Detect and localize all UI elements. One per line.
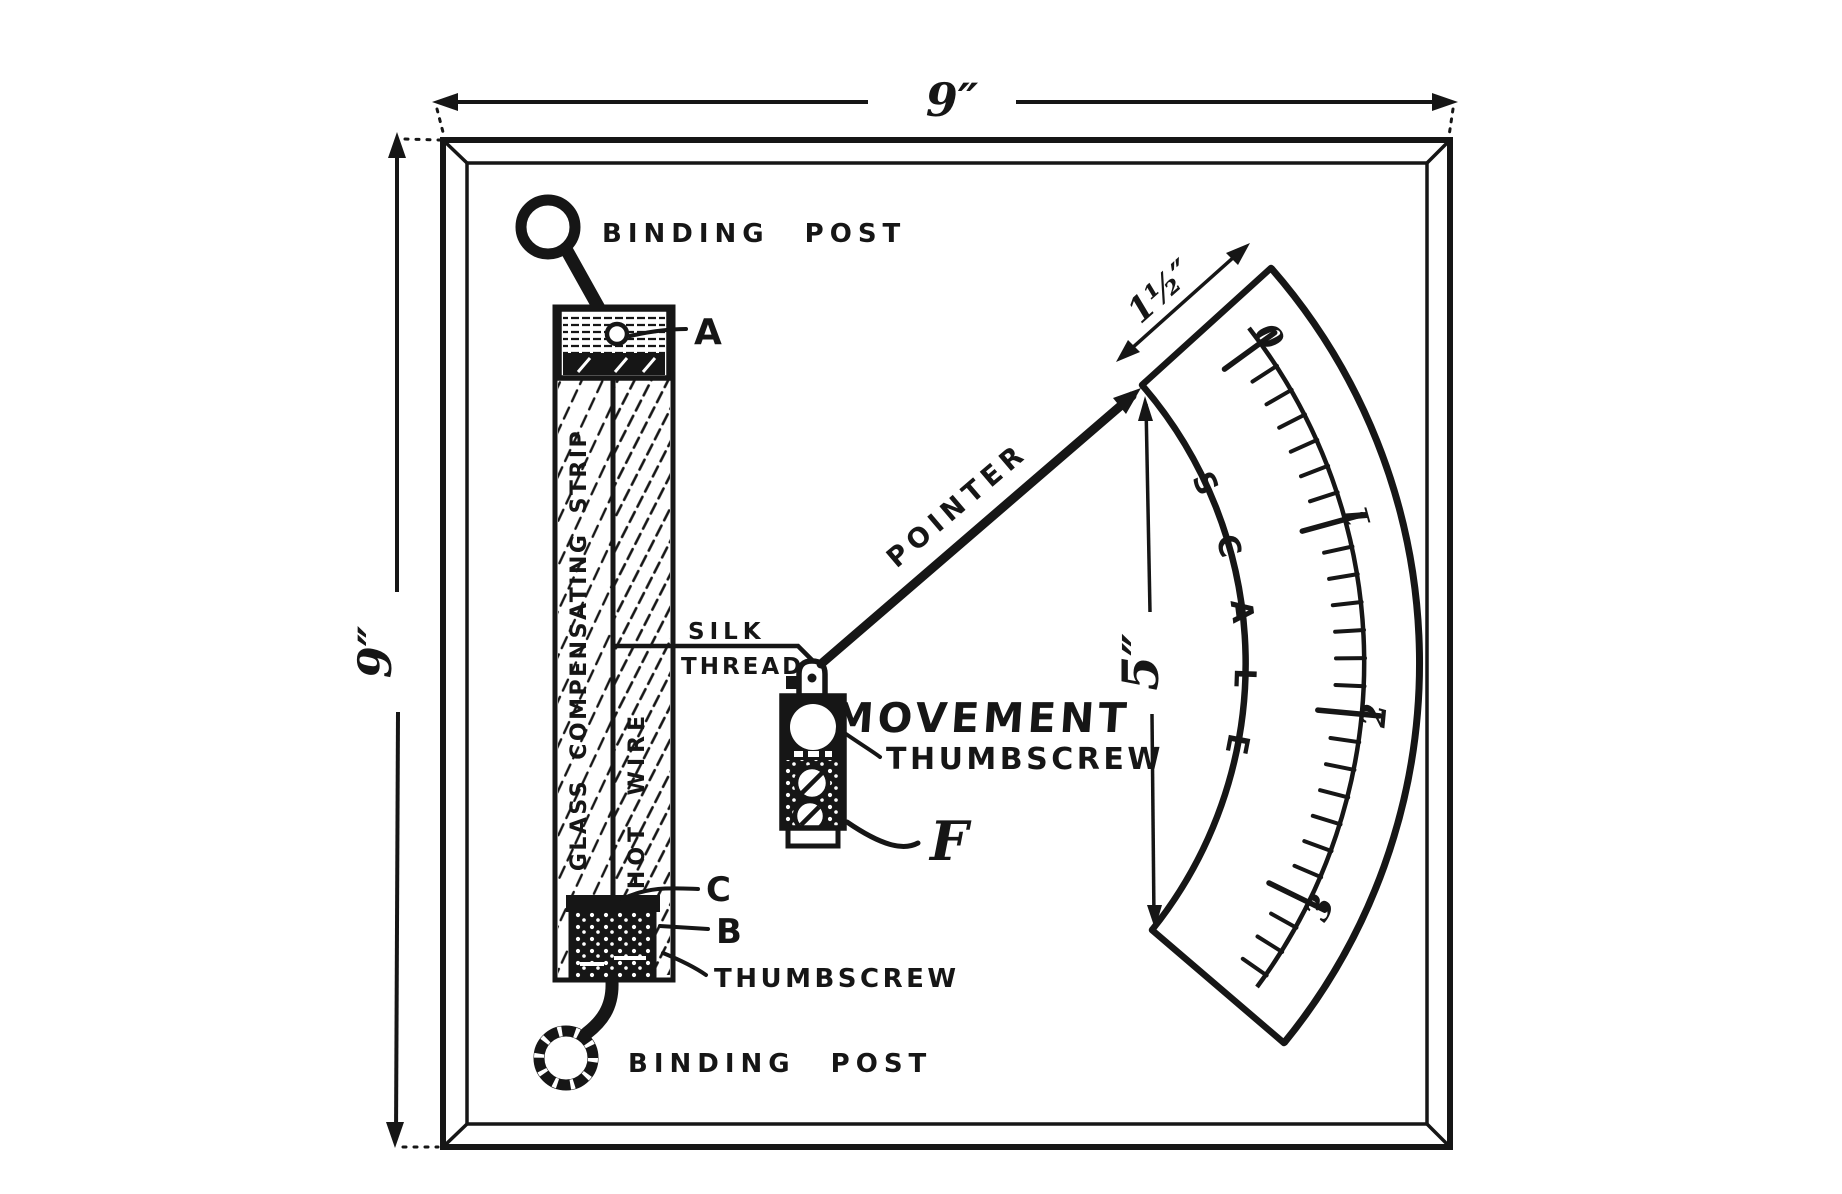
- thread-label: THREAD: [681, 654, 804, 680]
- scale-minor-tick: [1324, 547, 1352, 553]
- top-clamp-screw-icon: [607, 324, 627, 344]
- pointer-needle: [821, 396, 1132, 664]
- movement-thumbscrew-label: THUMBSCREW: [886, 742, 1164, 777]
- height-dim-arrow-top: [388, 132, 406, 158]
- scale-number-2: 2: [1353, 702, 1395, 730]
- scale-width-dim-label: 1½″: [1120, 252, 1202, 331]
- movement-thumbscrew-head-icon: [790, 704, 836, 750]
- scale-minor-tick: [1291, 440, 1317, 452]
- scale-word-letter: S: [1184, 466, 1225, 500]
- bottom-clamp-block: [566, 895, 660, 980]
- compensating-strip: GLASS COMPENSATING STRIP HOT WIRE: [555, 307, 673, 980]
- top-clamp-block: [559, 309, 669, 378]
- point-b-label: B: [716, 912, 742, 952]
- bottom-clamp-body: [571, 903, 654, 980]
- movement-label: MOVEMENT: [831, 694, 1132, 742]
- movement-detail-2: [808, 751, 819, 757]
- movement-detail-3: [825, 751, 832, 757]
- height-dim-line-bottom: [396, 712, 398, 1138]
- scale-minor-tick: [1333, 602, 1362, 605]
- scale-chord-dim-line-bottom: [1152, 714, 1154, 920]
- width-dimension: 9″: [432, 73, 1458, 136]
- board-bevel-bottom-left: [443, 1124, 467, 1147]
- width-dim-extension-left: [437, 109, 444, 136]
- glass-strip-label: GLASS COMPENSATING STRIP: [567, 429, 592, 871]
- scale-bottom-edge: [1152, 930, 1284, 1043]
- scale-minor-tick: [1243, 959, 1267, 976]
- bottom-binding-post-label: BINDING POST: [628, 1049, 932, 1079]
- scale-chord-dimension: 5″: [1111, 396, 1170, 929]
- hot-wire-label: HOT WIRE: [625, 711, 650, 889]
- scale-minor-tick: [1301, 466, 1328, 477]
- scale-word-letter: E: [1218, 731, 1256, 758]
- pivot-tab: [786, 676, 797, 689]
- scale-minor-tick: [1271, 914, 1296, 928]
- width-dim-label: 9″: [926, 73, 979, 127]
- height-dim-arrow-bottom: [386, 1122, 404, 1148]
- figure-page: 9″ 9″ BINDING POST GLASS COMPENS: [0, 0, 1842, 1194]
- movement-assembly: MOVEMENT THUMBSCREW F: [782, 661, 1164, 873]
- board-bevel-top-left: [443, 140, 467, 163]
- height-dimension: 9″: [348, 132, 440, 1148]
- height-dim-extension-top: [405, 139, 440, 140]
- scale-minor-tick: [1320, 790, 1348, 797]
- scale-assembly: 0123 SCALE 1½″ 5″: [1111, 243, 1420, 1043]
- board-bevel-bottom-right: [1427, 1124, 1450, 1147]
- silk-label: SILK: [688, 619, 766, 645]
- scale-word-letter: L: [1226, 668, 1262, 688]
- scale-word-letter: C: [1208, 531, 1248, 562]
- bottom-binding-post: BINDING POST: [539, 982, 932, 1085]
- pointer: POINTER: [821, 388, 1141, 664]
- scale-minor-tick: [1313, 816, 1341, 825]
- scale-minor-tick: [1326, 764, 1354, 770]
- hot-wire-meter-diagram: 9″ 9″ BINDING POST GLASS COMPENS: [0, 0, 1842, 1194]
- scale-minor-tick: [1258, 937, 1283, 952]
- scale-minor-tick: [1310, 492, 1338, 501]
- scale-minor-tick: [1336, 685, 1365, 686]
- movement-detail-1: [794, 751, 803, 757]
- board-bevel-top-right: [1427, 140, 1450, 163]
- scale-minor-tick: [1304, 841, 1331, 851]
- scale-minor-tick: [1295, 866, 1322, 877]
- scale-label-curved: SCALE: [1184, 466, 1262, 757]
- scale-word-letter: A: [1223, 598, 1261, 626]
- bottom-clamp-bar: [566, 895, 660, 912]
- point-a-label: A: [694, 312, 722, 353]
- width-dim-extension-right: [1449, 109, 1453, 136]
- height-dim-label: 9″: [348, 625, 402, 678]
- point-f-label: F: [928, 809, 972, 873]
- strip-thumbscrew-label: THUMBSCREW: [714, 964, 960, 994]
- pivot-point-icon: [808, 674, 817, 683]
- scale-graduation-numbers: 0123: [1247, 314, 1395, 928]
- scale-chord-dim-line-top: [1146, 404, 1150, 612]
- scale-chord-dim-label: 5″: [1111, 633, 1170, 691]
- scale-number-3: 3: [1297, 889, 1343, 928]
- leader-f: [847, 822, 918, 846]
- scale-minor-tick: [1279, 415, 1305, 428]
- top-binding-post-label: BINDING POST: [602, 219, 906, 249]
- bottom-binding-post-stem: [587, 982, 612, 1033]
- scale-minor-tick: [1331, 738, 1360, 742]
- scale-minor-tick: [1329, 574, 1358, 579]
- scale-minor-tick: [1335, 630, 1364, 632]
- point-c-label: C: [706, 870, 731, 910]
- scale-minor-tick: [1253, 366, 1277, 382]
- scale-minor-tick: [1267, 390, 1292, 405]
